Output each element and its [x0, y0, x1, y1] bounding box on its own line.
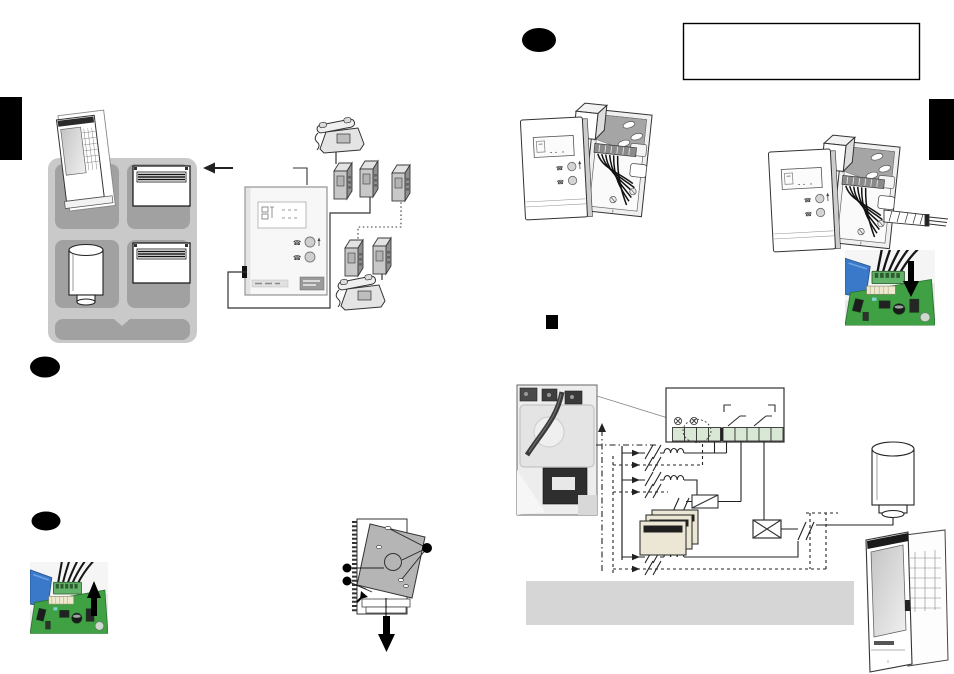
display-panel — [258, 202, 306, 228]
page-tab-left — [0, 97, 22, 160]
phone-adapter — [360, 161, 378, 197]
central-control-unit: ☎ ☎ — [242, 168, 327, 295]
schematic-thermostat — [866, 530, 948, 672]
branch-arrows — [632, 450, 640, 572]
scanned-page-art: ☎ ☎ — [0, 0, 954, 674]
cable-sheath — [884, 210, 948, 226]
call-button — [305, 237, 315, 247]
call-button — [305, 252, 315, 262]
logo-box — [300, 277, 324, 290]
phone-adapter — [345, 240, 363, 276]
heater-illustration — [133, 166, 190, 206]
schematic-heaters — [640, 510, 698, 555]
page-tab-right — [929, 99, 954, 160]
phone-adapter — [334, 163, 352, 199]
step-badge — [32, 512, 61, 531]
gray-band — [526, 581, 854, 625]
step-badge — [522, 28, 556, 52]
down-arrow-icon — [378, 616, 395, 652]
schematic-valve-actuator — [872, 442, 914, 518]
terminal-box — [666, 388, 784, 443]
wall-unit-open-right — [768, 134, 900, 252]
phone-adapter — [373, 238, 391, 274]
step-badge — [30, 357, 60, 378]
telephone-illustration — [315, 117, 364, 153]
note-box — [684, 24, 920, 80]
cover-plate — [357, 524, 425, 598]
system-overview-grid — [48, 110, 233, 343]
telephone-illustration — [336, 274, 385, 310]
junction-box-photo — [517, 385, 597, 515]
cover-removal-diagram — [343, 519, 433, 652]
phone-icon: ☎ — [293, 254, 301, 262]
wiring-schematic — [517, 385, 948, 672]
wall-unit-open-left — [520, 102, 652, 220]
callout-dot — [343, 564, 352, 573]
pcb-connector-photo-unplug — [30, 557, 108, 633]
bullet-square — [546, 315, 558, 329]
callout-dot — [422, 543, 432, 553]
phone-adapter — [392, 165, 410, 201]
terminal-strip — [673, 428, 784, 442]
manual-spread: ☎ ☎ — [0, 0, 954, 674]
callout-dot — [343, 577, 352, 586]
pcb-connector-photo-plug — [845, 245, 935, 325]
up-arrow-icon — [598, 423, 606, 432]
heater-illustration — [133, 243, 190, 283]
phone-icon: ☎ — [293, 239, 301, 247]
left-arrow-icon — [203, 163, 233, 174]
